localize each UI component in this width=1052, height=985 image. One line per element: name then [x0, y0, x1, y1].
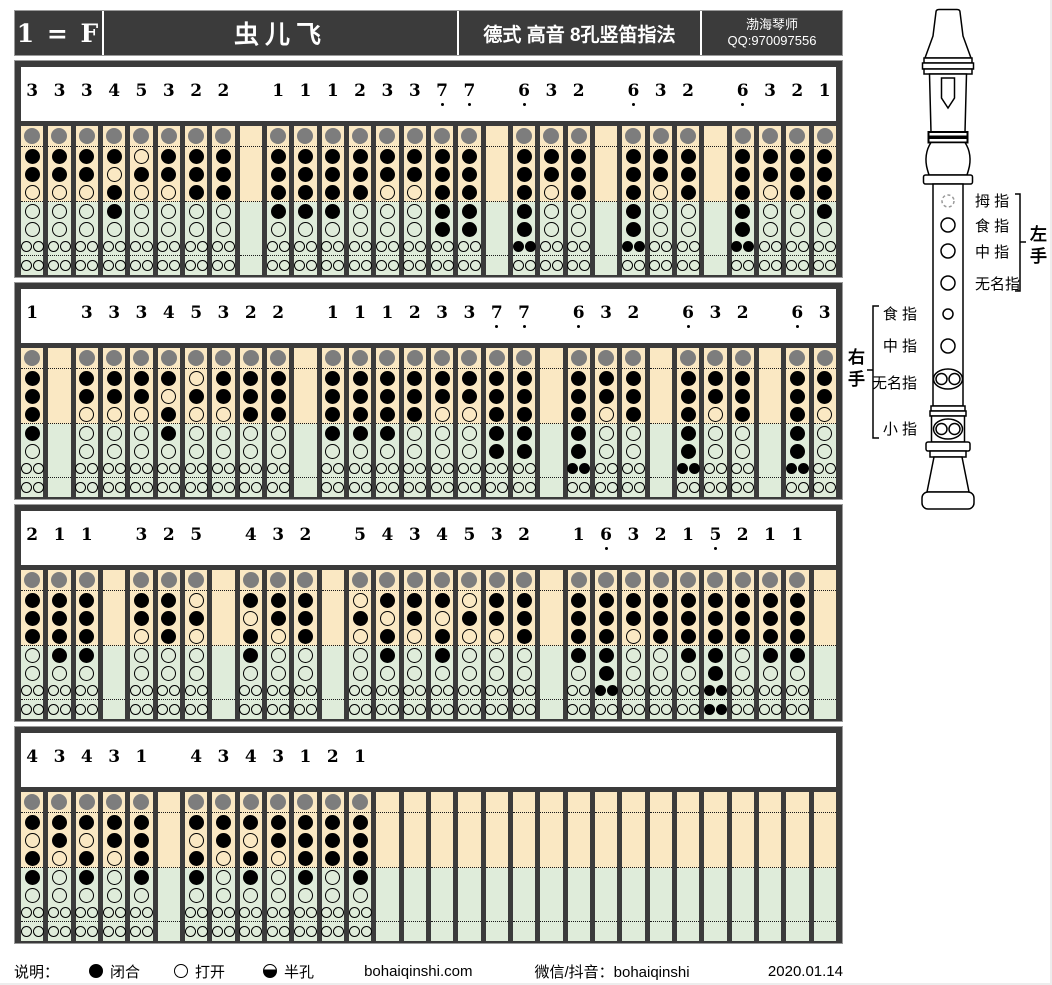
hole-3	[189, 407, 204, 422]
thumb-cell	[486, 792, 508, 813]
note-gap-cell	[486, 67, 508, 121]
hole-3	[653, 629, 668, 644]
hole-5-cell	[540, 886, 562, 904]
note-number: 2	[737, 304, 749, 322]
hole-3	[134, 629, 149, 644]
fingering-column	[349, 126, 371, 275]
thumb-cell	[404, 570, 426, 591]
thumb-hole	[270, 794, 286, 810]
hole-5	[462, 666, 477, 681]
hole-6-double	[376, 463, 399, 474]
hole-3-cell	[458, 183, 480, 201]
hole-5	[25, 666, 40, 681]
hole-3	[189, 851, 204, 866]
hole-6-cell	[294, 460, 316, 478]
hole-3-cell	[158, 627, 180, 645]
hole-2-cell	[21, 387, 43, 405]
hole-7-double	[704, 704, 727, 715]
note-number: 2	[300, 526, 312, 544]
hole-5-cell	[349, 442, 371, 460]
hole-1-cell	[622, 369, 644, 387]
author-name: 渤海琴师	[746, 17, 798, 33]
hole-3-cell	[486, 627, 508, 645]
hole-2-cell	[240, 387, 262, 405]
hole-1	[79, 371, 94, 386]
hole-5	[134, 444, 149, 459]
hole-5-cell	[458, 886, 480, 904]
hole-6-double	[731, 685, 754, 696]
hole-1	[407, 371, 422, 386]
left-hand-section	[568, 126, 590, 202]
hole-6-cell	[732, 238, 754, 256]
hole-3-cell	[732, 405, 754, 423]
hole-4-cell	[103, 868, 125, 886]
hole-6-cell	[376, 682, 398, 700]
hole-6-double	[458, 241, 481, 252]
hole-3	[243, 407, 258, 422]
right-hand-section	[103, 424, 125, 497]
thumb-cell	[185, 570, 207, 591]
hole-1	[489, 371, 504, 386]
hole-5-cell	[158, 886, 180, 904]
octave-dot	[687, 325, 690, 328]
hole-4-cell	[130, 424, 152, 442]
hole-3-cell	[568, 183, 590, 201]
note-gap-cell	[404, 733, 426, 787]
hole-7-cell	[704, 478, 726, 497]
hole-4	[298, 648, 313, 663]
hole-5-cell	[376, 220, 398, 238]
hole-6-double	[731, 463, 754, 474]
fingering-grid	[21, 792, 836, 941]
hole-5	[134, 222, 149, 237]
hole-1-cell	[212, 369, 234, 387]
hole-6-cell	[622, 682, 644, 700]
hole-4-cell	[595, 424, 617, 442]
hole-3	[353, 629, 368, 644]
hole-1-cell	[759, 369, 781, 387]
hole-3-cell	[595, 405, 617, 423]
hole-6-double	[48, 907, 71, 918]
fingering-column	[21, 126, 43, 275]
hole-4	[626, 648, 641, 663]
hole-3-cell	[458, 405, 480, 423]
hole-7-double	[157, 482, 180, 493]
hole-2	[216, 167, 231, 182]
fingering-column	[458, 570, 480, 719]
note-number: 2	[26, 526, 38, 544]
hole-5-cell	[404, 664, 426, 682]
hole-7-double	[622, 260, 645, 271]
hole-2	[25, 167, 40, 182]
fingering-column	[568, 348, 590, 497]
empty-column	[376, 792, 398, 941]
hole-6-cell	[76, 460, 98, 478]
hole-6-double	[595, 463, 618, 474]
hole-3	[708, 629, 723, 644]
hole-3	[380, 185, 395, 200]
fingering-column	[704, 348, 726, 497]
hole-6-double	[731, 241, 754, 252]
empty-column	[704, 792, 726, 941]
hole-1-cell	[404, 369, 426, 387]
hole-7-cell	[458, 700, 480, 719]
hole-6-double	[185, 907, 208, 918]
hole-7-cell	[540, 700, 562, 719]
legend: 说明： 闭合 打开 半孔 bohaiqinshi.com 微信/抖音：bohai…	[14, 960, 843, 982]
note-cell: 2	[322, 733, 344, 787]
note-number: 2	[627, 304, 639, 322]
fingering-column	[322, 126, 344, 275]
hole-1-cell	[568, 369, 590, 387]
hole-2-cell	[595, 387, 617, 405]
right-hand-section	[540, 424, 562, 497]
note-cell: 3	[212, 289, 234, 343]
thumb-cell	[76, 126, 98, 147]
hole-2-cell	[431, 609, 453, 627]
thumb-hole	[461, 572, 477, 588]
hole-1-cell	[294, 369, 316, 387]
hole-1-cell	[240, 147, 262, 165]
hole-1-cell	[294, 591, 316, 609]
thumb-hole	[489, 350, 505, 366]
hole-3-cell	[322, 627, 344, 645]
hole-1-cell	[404, 147, 426, 165]
thumb-hole	[516, 572, 532, 588]
fingering-column	[513, 570, 535, 719]
octave-dot	[441, 103, 444, 106]
fingering-column	[404, 126, 426, 275]
hole-7-cell	[158, 922, 180, 941]
hole-3-cell	[294, 849, 316, 867]
hole-3-cell	[267, 849, 289, 867]
hole-1-cell	[650, 147, 672, 165]
hole-4-cell	[294, 868, 316, 886]
left-hand-section	[240, 570, 262, 646]
hole-3-cell	[650, 849, 672, 867]
hole-2	[243, 611, 258, 626]
label-left-ring: 无名指	[975, 276, 1020, 293]
hole-4-cell	[185, 202, 207, 220]
hole-7-cell	[48, 700, 70, 719]
thumb-hole	[735, 128, 751, 144]
left-hand-section	[185, 126, 207, 202]
hole-2	[735, 389, 750, 404]
hole-2-cell	[76, 165, 98, 183]
left-hand-section	[322, 570, 344, 646]
hole-4-cell	[431, 424, 453, 442]
hole-7-cell	[48, 256, 70, 275]
hole-3	[681, 407, 696, 422]
note-number: 2	[190, 82, 202, 100]
hole-3-cell	[240, 405, 262, 423]
hole-5	[571, 444, 586, 459]
right-hand-section	[158, 646, 180, 719]
song-title: 虫儿飞	[102, 11, 457, 55]
hole-7-double	[48, 926, 71, 937]
hole-7-cell	[76, 700, 98, 719]
hole-6-cell	[513, 460, 535, 478]
hole-4-cell	[595, 646, 617, 664]
hole-1-cell	[814, 591, 836, 609]
hole-3	[107, 851, 122, 866]
hole-2	[161, 167, 176, 182]
note-number: 6	[791, 304, 803, 322]
fingering-column	[513, 126, 535, 275]
hole-5-cell	[704, 220, 726, 238]
hole-4-cell	[158, 646, 180, 664]
thumb-hole	[161, 572, 177, 588]
thumb-cell	[48, 126, 70, 147]
hole-1-cell	[322, 147, 344, 165]
hole-7-double	[75, 704, 98, 715]
note-gap-cell	[732, 733, 754, 787]
note-cell: 1	[677, 511, 699, 565]
right-hand-section	[732, 646, 754, 719]
hole-3	[25, 185, 40, 200]
note-number: 2	[737, 526, 749, 544]
hole-7-double	[157, 260, 180, 271]
hole-6-double	[704, 463, 727, 474]
hole-3	[134, 185, 149, 200]
hole-1-cell	[759, 591, 781, 609]
thumb-hole	[598, 572, 614, 588]
note-number: 3	[627, 526, 639, 544]
note-gap-cell	[704, 67, 726, 121]
right-hand-section	[595, 646, 617, 719]
note-number: 1	[81, 526, 93, 544]
hole-1-cell	[540, 591, 562, 609]
empty-column	[240, 126, 262, 275]
phrase-block-4: 434314343121	[14, 726, 843, 944]
hole-3-cell	[376, 849, 398, 867]
left-hand-section	[650, 126, 672, 202]
hole-6-cell	[103, 682, 125, 700]
hole-3-cell	[349, 627, 371, 645]
hole-5	[626, 222, 641, 237]
hole-2-cell	[240, 831, 262, 849]
right-hand-section	[458, 646, 480, 719]
hole-4	[817, 204, 832, 219]
hole-5-cell	[240, 220, 262, 238]
thumb-hole	[352, 794, 368, 810]
left-hand-section	[267, 348, 289, 424]
note-cell: 2	[294, 511, 316, 565]
hole-5-cell	[431, 664, 453, 682]
note-cell: 1	[814, 67, 836, 121]
right-hand-section	[322, 868, 344, 941]
hole-7-double	[567, 482, 590, 493]
hole-6-cell	[759, 682, 781, 700]
hole-3	[52, 851, 67, 866]
hole-1	[25, 815, 40, 830]
hole-1	[79, 149, 94, 164]
label-right-ring: 无名指	[872, 375, 917, 392]
fingering-column	[158, 126, 180, 275]
left-hand-section	[212, 570, 234, 646]
hole-4-cell	[595, 868, 617, 886]
hole-3	[544, 185, 559, 200]
left-hand-section	[540, 792, 562, 868]
hole-6-cell	[677, 682, 699, 700]
note-gap-cell	[103, 511, 125, 565]
hole-6-double	[21, 463, 44, 474]
hole-5	[134, 666, 149, 681]
hole-5-cell	[458, 664, 480, 682]
right-hand-section	[431, 424, 453, 497]
hole-2-cell	[376, 387, 398, 405]
chart-type-label: 德式 高音 8孔竖笛指法	[457, 11, 700, 55]
note-cell: 3	[376, 67, 398, 121]
hole-2	[325, 389, 340, 404]
hole-7-double	[786, 260, 809, 271]
hole-4	[161, 426, 176, 441]
hole-4	[435, 204, 450, 219]
hole-4-cell	[786, 868, 808, 886]
hole-4	[298, 204, 313, 219]
right-hand-section	[704, 424, 726, 497]
hole-6-cell	[704, 460, 726, 478]
note-cell: 2	[786, 67, 808, 121]
hole-7-cell	[185, 256, 207, 275]
hole-4-cell	[622, 202, 644, 220]
hole-7-cell	[130, 922, 152, 941]
hole-4-cell	[568, 202, 590, 220]
hole-5	[407, 666, 422, 681]
right-hand-section	[76, 646, 98, 719]
thumb-cell	[786, 792, 808, 813]
hole-6-double	[212, 241, 235, 252]
right-hand-section	[376, 424, 398, 497]
hole-7-cell	[322, 478, 344, 497]
hole-4	[325, 870, 340, 885]
fingering-column	[130, 348, 152, 497]
hole-3-cell	[103, 183, 125, 201]
thumb-cell	[677, 348, 699, 369]
hole-7-double	[349, 260, 372, 271]
empty-column	[458, 792, 480, 941]
hole-2-cell	[349, 165, 371, 183]
hole-5	[517, 444, 532, 459]
hole-7-cell	[349, 478, 371, 497]
hole-6-double	[267, 685, 290, 696]
right-hand-section	[513, 202, 535, 275]
hole-2-cell	[158, 387, 180, 405]
note-cell: 3	[650, 67, 672, 121]
hole-2-cell	[130, 609, 152, 627]
hole-2-cell	[622, 609, 644, 627]
thumb-hole	[789, 350, 805, 366]
hole-6-double	[21, 907, 44, 918]
hole-4-cell	[48, 424, 70, 442]
hole-5-cell	[376, 664, 398, 682]
hole-3-cell	[185, 183, 207, 201]
fingering-column	[76, 348, 98, 497]
hole-5-cell	[130, 886, 152, 904]
thumb-hole	[379, 128, 395, 144]
hole-3	[681, 629, 696, 644]
thumb-hole	[680, 572, 696, 588]
note-cell: 1	[322, 67, 344, 121]
hole-7-double	[431, 260, 454, 271]
hole-2	[653, 611, 668, 626]
note-cell: 4	[240, 511, 262, 565]
hole-6-double	[376, 685, 399, 696]
hole-1-cell	[677, 147, 699, 165]
hole-7-double	[267, 482, 290, 493]
hole-1	[407, 593, 422, 608]
hole-1-cell	[458, 813, 480, 831]
thumb-cell	[513, 570, 535, 591]
hole-6-cell	[158, 682, 180, 700]
thumb-hole	[51, 128, 67, 144]
hole-5	[435, 666, 450, 681]
hole-2-cell	[212, 165, 234, 183]
hole-5	[353, 666, 368, 681]
hole-1	[380, 149, 395, 164]
fingering-column	[48, 570, 70, 719]
hole-6-double	[622, 685, 645, 696]
hole-6-cell	[240, 460, 262, 478]
hole-6-cell	[814, 460, 836, 478]
hole-4-cell	[458, 202, 480, 220]
left-hand-section	[267, 570, 289, 646]
hole-5-cell	[294, 220, 316, 238]
note-gap-cell	[486, 733, 508, 787]
right-hand-section	[267, 868, 289, 941]
right-hand-section	[513, 868, 535, 941]
thumb-hole	[516, 128, 532, 144]
hole-3-cell	[704, 849, 726, 867]
note-number: 1	[136, 748, 148, 766]
hole-1	[462, 371, 477, 386]
key-signature: 1 = F	[15, 11, 102, 55]
hole-4-cell	[103, 424, 125, 442]
hole-2-cell	[185, 165, 207, 183]
hole-2-cell	[814, 165, 836, 183]
hole-6-cell	[568, 460, 590, 478]
hole-6-cell	[294, 904, 316, 922]
thumb-cell	[732, 126, 754, 147]
hole-3-cell	[540, 849, 562, 867]
note-gap-cell	[650, 733, 672, 787]
hole-3	[407, 407, 422, 422]
note-number: 1	[300, 82, 312, 100]
hole-4	[107, 426, 122, 441]
hole-2-cell	[540, 831, 562, 849]
hole-5	[380, 444, 395, 459]
hole-3-cell	[595, 183, 617, 201]
hole-1-cell	[732, 591, 754, 609]
right-hand-section	[48, 868, 70, 941]
hole-6-cell	[458, 460, 480, 478]
thumb-cell	[103, 126, 125, 147]
hole-2	[271, 833, 286, 848]
hole-6-double	[485, 463, 508, 474]
hole-3-cell	[185, 849, 207, 867]
hole-4	[790, 648, 805, 663]
thumb-cell	[704, 570, 726, 591]
hole-4	[571, 426, 586, 441]
hole-4-cell	[704, 424, 726, 442]
hole-3	[271, 851, 286, 866]
fingering-column	[568, 126, 590, 275]
hole-6-double	[595, 685, 618, 696]
left-hand-section	[622, 570, 644, 646]
note-cell: 3	[704, 289, 726, 343]
hole-6-double	[294, 241, 317, 252]
hole-6-cell	[212, 460, 234, 478]
